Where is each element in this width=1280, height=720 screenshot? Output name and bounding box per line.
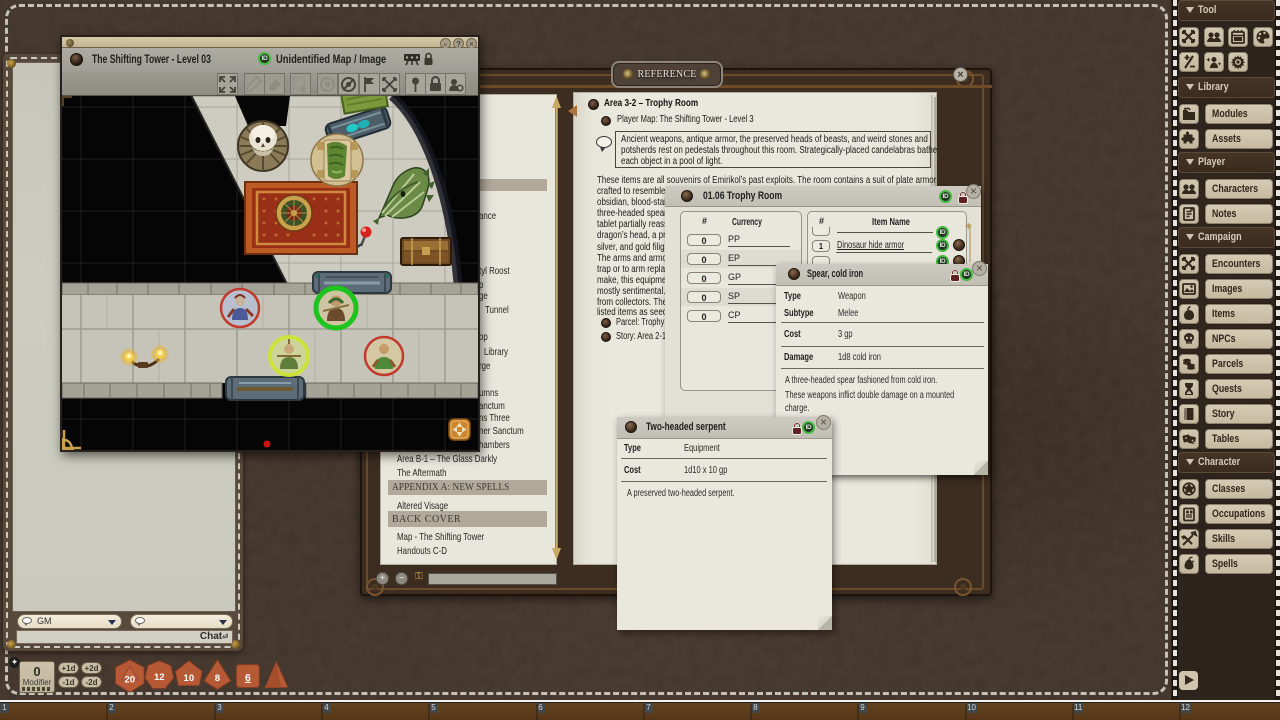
svg-text:20: 20 (124, 675, 135, 686)
svg-text:6: 6 (245, 673, 251, 684)
svg-text:10: 10 (184, 673, 195, 684)
svg-text:12: 12 (154, 672, 165, 683)
svg-text:8: 8 (215, 673, 220, 684)
